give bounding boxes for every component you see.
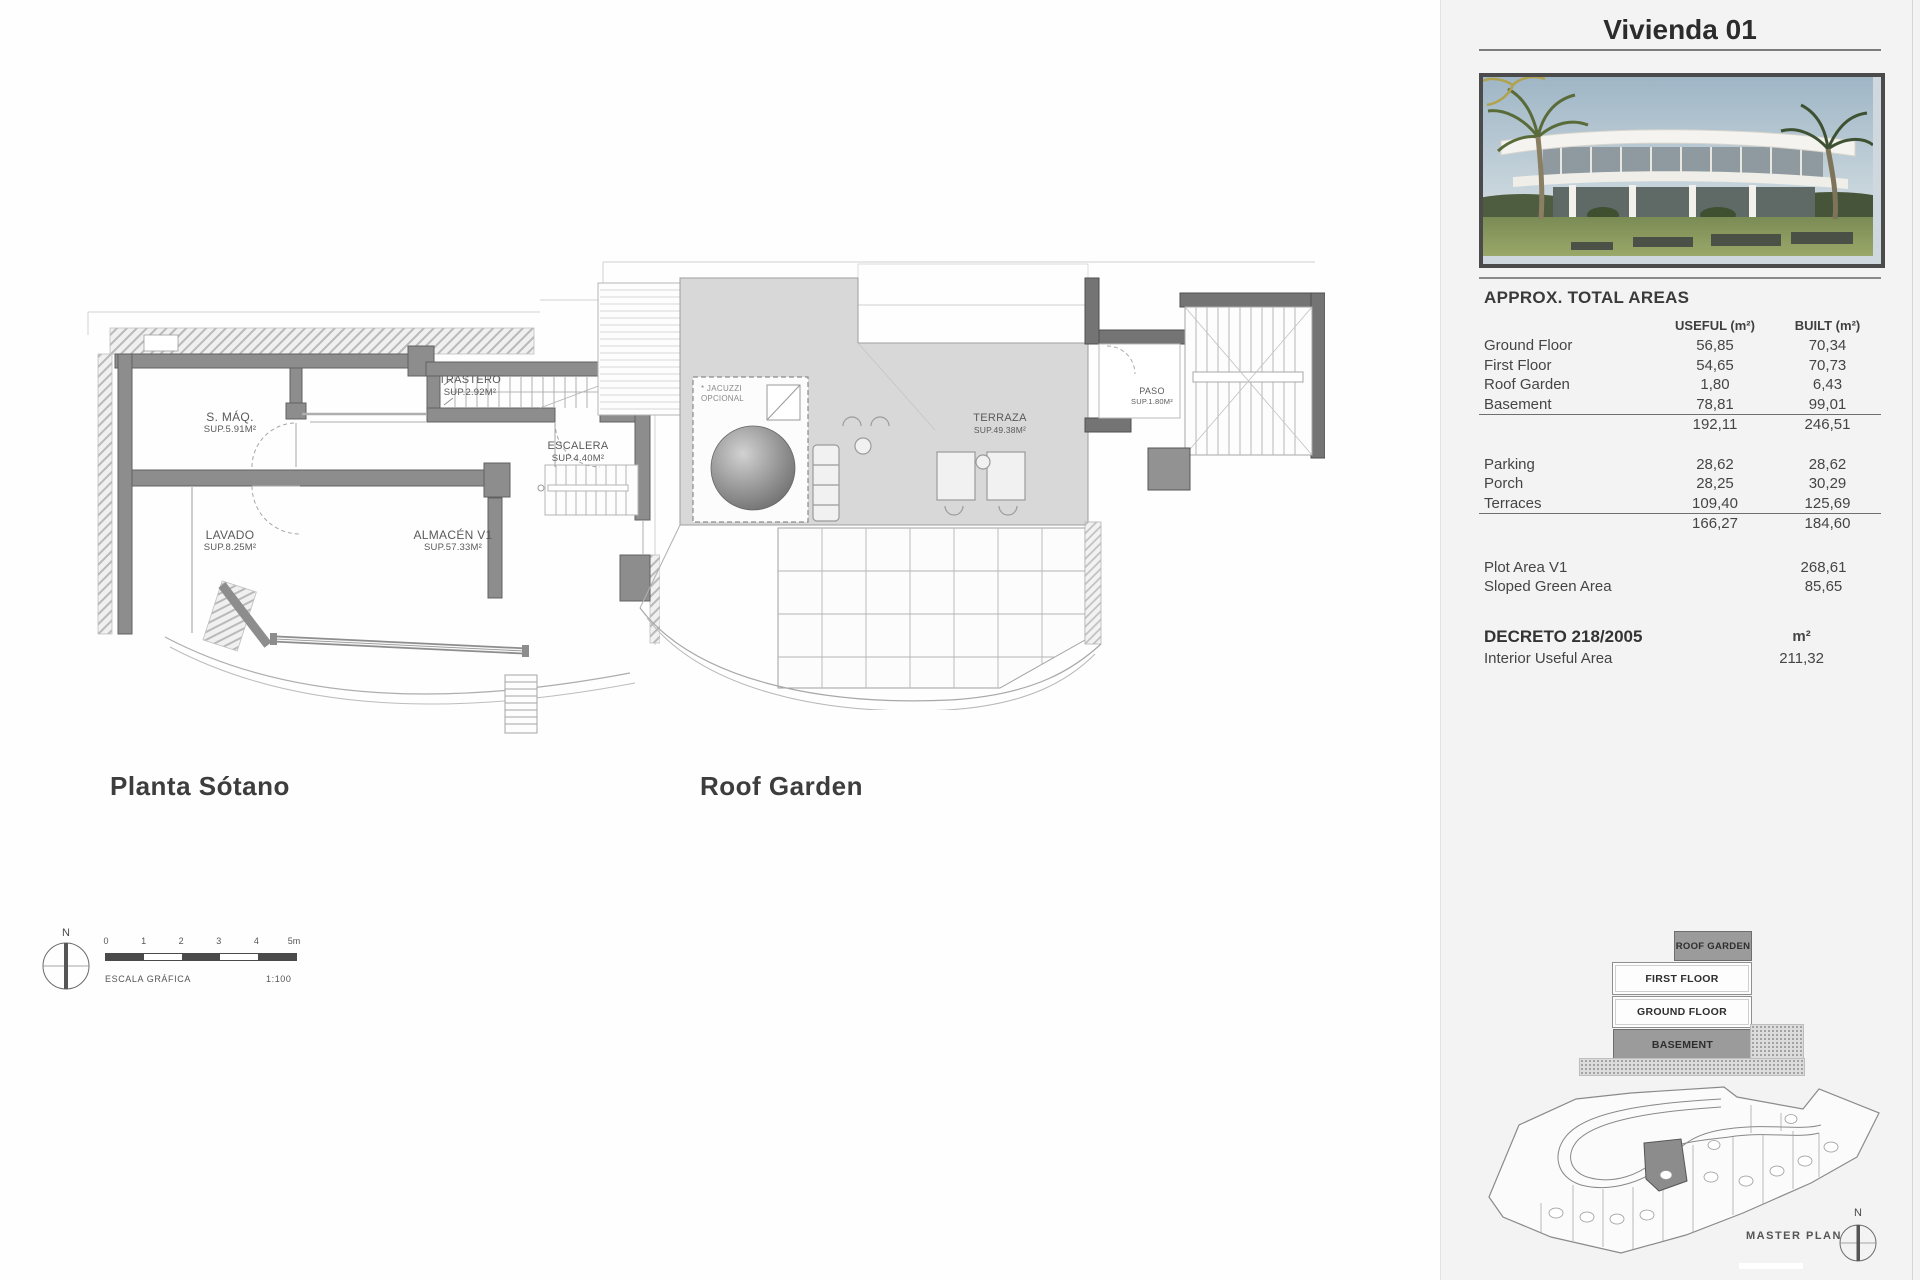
jacuzzi-circle: [711, 426, 795, 510]
compass-n-label: N: [62, 927, 70, 939]
villa-title: Vivienda 01: [1479, 14, 1881, 46]
plot-row: Sloped Green Area 85,65: [1479, 577, 1881, 597]
master-plan-highlight-plot: [1644, 1139, 1687, 1191]
basement-exterior-stair: [505, 675, 537, 733]
compass-needle: [64, 943, 68, 989]
scale-ratio: 1:100: [266, 974, 292, 984]
exterior-total-row: 166,27 184,60: [1479, 514, 1881, 534]
ground-hatch-right: [1750, 1024, 1804, 1059]
master-plan-compass: N: [1834, 1200, 1884, 1270]
interior-useful-row: Interior Useful Area 211,32: [1479, 649, 1881, 669]
master-plan: [1481, 1085, 1891, 1273]
basement-partition-lines: [192, 414, 643, 633]
basement-plan-title: Planta Sótano: [110, 771, 290, 802]
north-compass: N: [36, 918, 98, 996]
table-row: Parking 28,62 28,62: [1479, 455, 1881, 475]
title-underline: [1479, 49, 1881, 51]
roof-plan-title: Roof Garden: [700, 771, 863, 802]
stack-ground-floor: GROUND FLOOR: [1612, 996, 1752, 1028]
svg-text:N: N: [1854, 1207, 1862, 1219]
master-plan-scale-bar: [1739, 1263, 1803, 1269]
col-useful: USEFUL (m²): [1656, 318, 1774, 333]
roof-pergola: [598, 283, 682, 415]
stack-basement: BASEMENT: [1613, 1029, 1752, 1060]
villa-render-image: [1479, 73, 1885, 268]
plot-row: Plot Area V1 268,61: [1479, 558, 1881, 578]
basement-floor-plan: [70, 255, 660, 775]
table-row: Basement 78,81 99,01: [1479, 395, 1881, 415]
areas-table: USEFUL (m²) BUILT (m²) Ground Floor 56,8…: [1479, 314, 1881, 669]
table-row: Terraces 109,40 125,69: [1479, 494, 1881, 514]
areas-table-header: USEFUL (m²) BUILT (m²): [1479, 314, 1881, 336]
table-row: Ground Floor 56,85 70,34: [1479, 336, 1881, 356]
areas-heading: APPROX. TOTAL AREAS: [1484, 288, 1689, 308]
roof-elevator: [1148, 448, 1190, 490]
roof-trellis: [778, 522, 1101, 688]
sidebar-right-edge: [1912, 0, 1913, 1280]
roof-stair: [1185, 307, 1312, 455]
plan-sheet: S. MÁQ. SUP.5.91M² TRASTERO SUP.2.92M² E…: [0, 0, 1920, 1280]
villa-render-art: [1483, 77, 1873, 256]
master-plan-label: MASTER PLAN: [1746, 1230, 1842, 1242]
sidebar: Vivienda 01: [1440, 0, 1920, 1280]
stack-roof-garden: ROOF GARDEN: [1674, 931, 1752, 961]
scale-caption: ESCALA GRÁFICA: [105, 974, 191, 984]
ground-hatch-bottom: [1579, 1058, 1805, 1076]
table-row: Porch 28,25 30,29: [1479, 474, 1881, 494]
scale-ticks: 01 23 45m: [96, 936, 304, 946]
stack-first-floor: FIRST FLOOR: [1612, 962, 1752, 995]
table-row: First Floor 54,65 70,73: [1479, 356, 1881, 376]
floors-total-row: 192,11 246,51: [1479, 415, 1881, 435]
col-built: BUILT (m²): [1774, 318, 1881, 333]
graphic-scale-bar: [105, 953, 297, 961]
decreto-heading-row: DECRETO 218/2005 m²: [1479, 625, 1881, 649]
roof-paso-room: [1099, 344, 1180, 418]
basement-glazing-band: [270, 633, 529, 657]
roof-jacuzzi: [693, 377, 808, 522]
section-divider: [1479, 277, 1881, 279]
table-row: Roof Garden 1,80 6,43: [1479, 375, 1881, 395]
roof-garden-plan: [595, 250, 1325, 710]
